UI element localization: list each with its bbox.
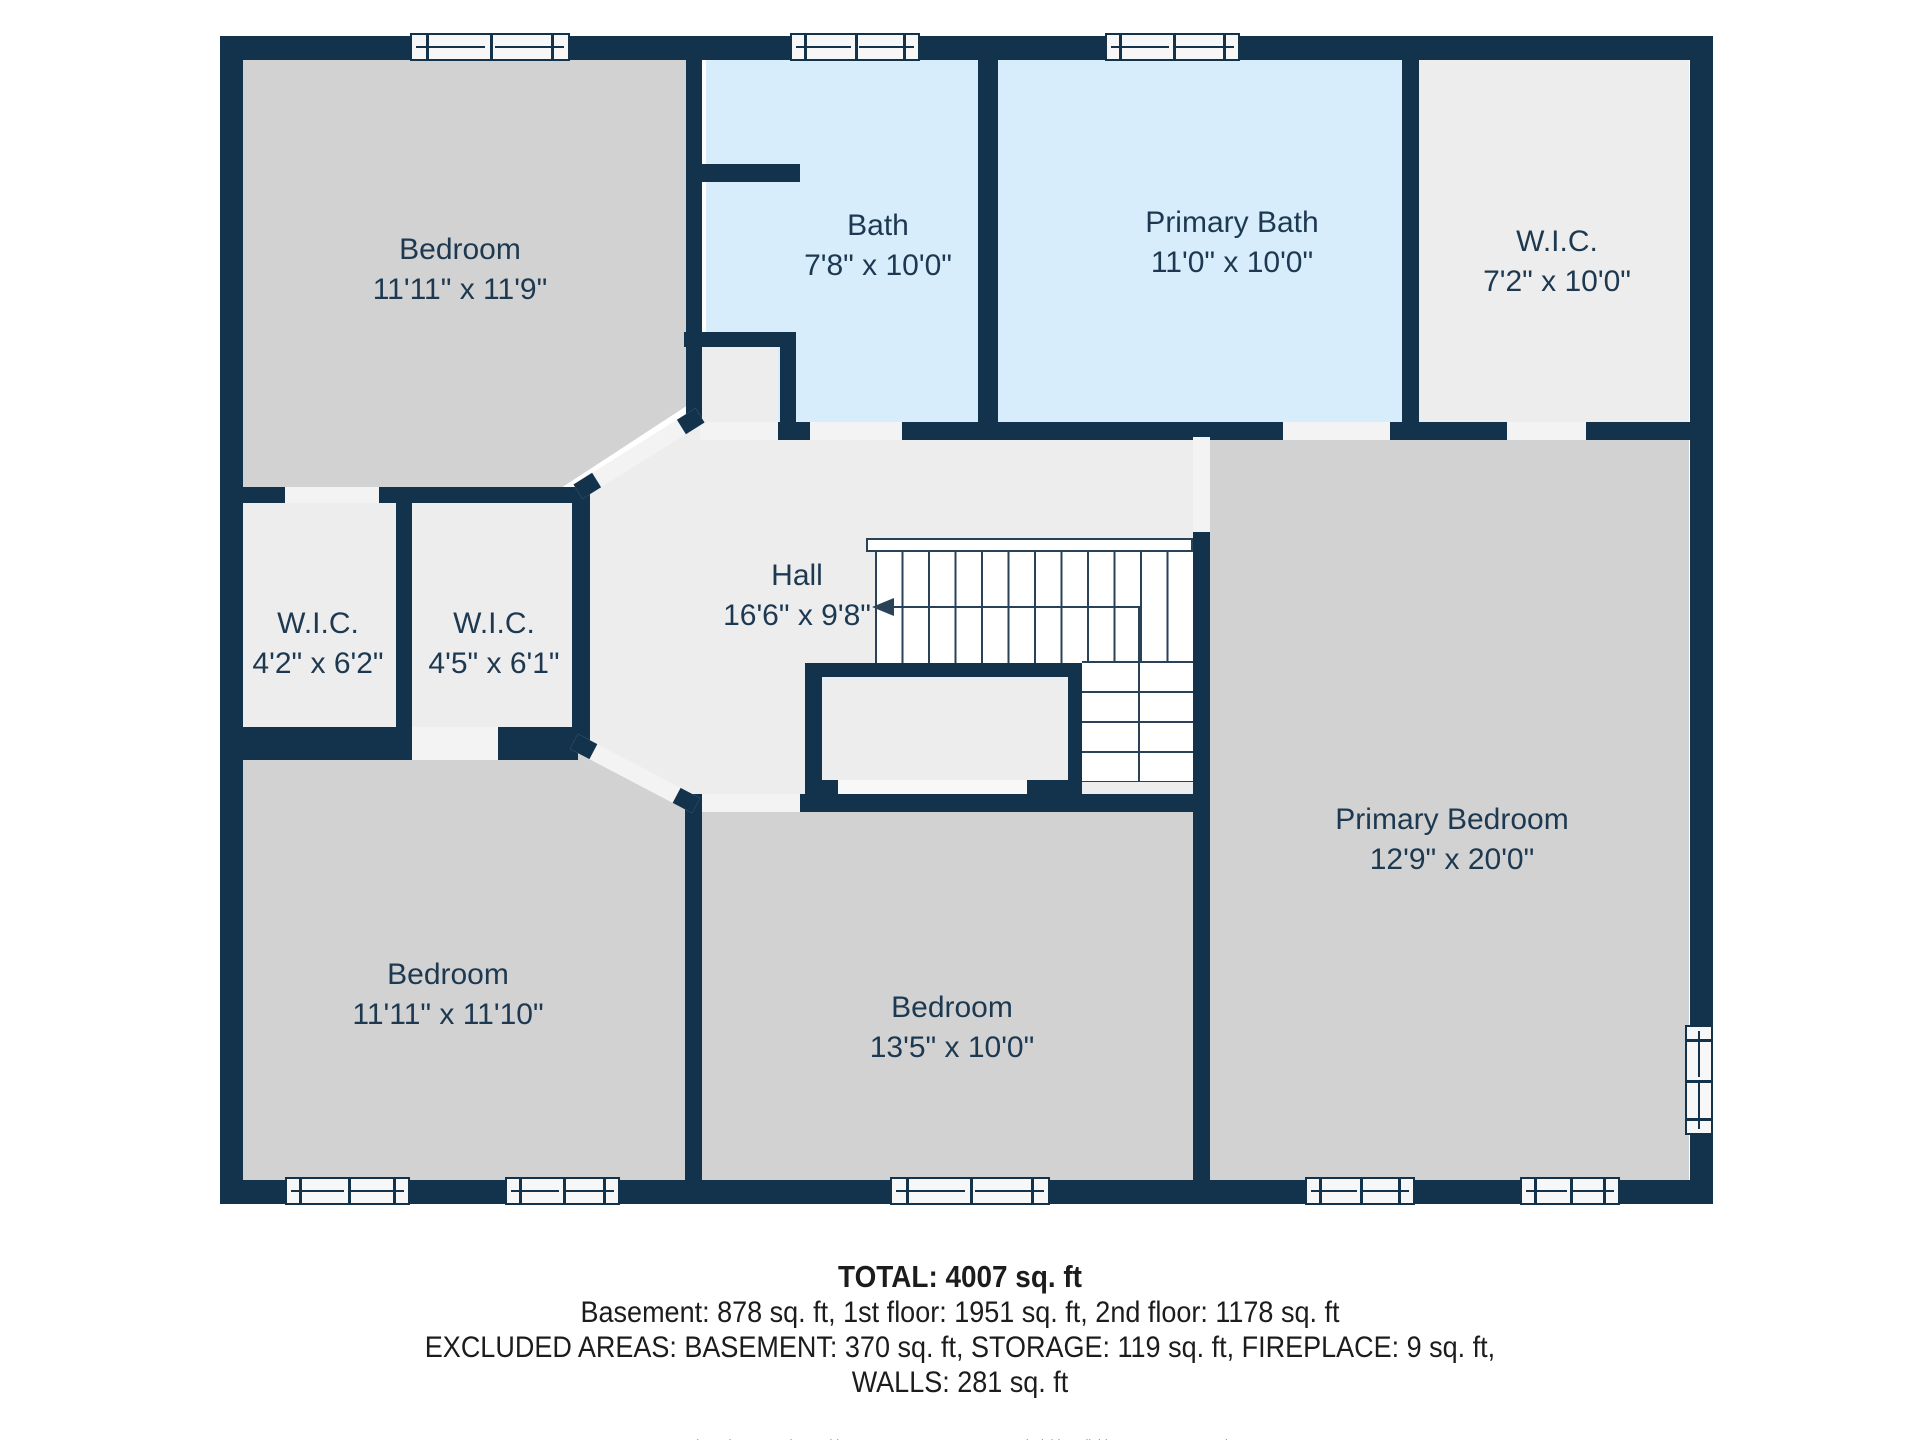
window: [1685, 1025, 1713, 1135]
label-hall: Hall16'6" x 9'8": [723, 556, 871, 636]
wall-hall-top-c: [1390, 422, 1507, 440]
stairs-balustrade: [866, 538, 1193, 552]
walls-area: WALLS: 281 sq. ft: [96, 1369, 1824, 1397]
label-wic-topright: W.I.C.7'2" x 10'0": [1483, 222, 1631, 302]
wall-hall-top-b: [902, 422, 1283, 440]
door-wic-topright: [1507, 422, 1586, 440]
wall-hall-left: [572, 487, 590, 747]
exterior-wall-left: [220, 36, 243, 1204]
window: [1105, 33, 1240, 61]
wall-wic-top-a: [243, 487, 285, 503]
stairs-direction-arrow: [872, 598, 894, 616]
door-bedroom-bottomcenter: [702, 794, 800, 812]
window: [285, 1177, 410, 1205]
wall-hall-top-d: [1586, 422, 1690, 440]
door-bath: [810, 422, 902, 440]
wall-wic-top-b: [379, 487, 577, 503]
label-primary-bedroom: Primary Bedroom12'9" x 20'0": [1335, 800, 1568, 880]
stair-closet-opening: [838, 780, 1027, 794]
wall-bath-stub: [696, 164, 800, 182]
wall-bedrooms-divider: [685, 805, 702, 1180]
window: [1305, 1177, 1415, 1205]
wall-wic-divider: [396, 503, 412, 727]
label-wic-left: W.I.C.4'2" x 6'2": [252, 604, 383, 684]
stairs-arrow-horizontal: [892, 606, 1140, 608]
wall-vestibule-right: [780, 332, 796, 422]
window: [1520, 1177, 1620, 1205]
label-primary-bath: Primary Bath11'0" x 10'0": [1145, 203, 1318, 283]
wall-primarybath-wic: [1402, 58, 1419, 424]
label-bath: Bath7'8" x 10'0": [804, 206, 952, 286]
area-summary: TOTAL: 4007 sq. ft Basement: 878 sq. ft,…: [0, 1262, 1920, 1440]
wall-hall-primary-stub: [1193, 422, 1210, 437]
window: [890, 1177, 1050, 1205]
total-area: TOTAL: 4007 sq. ft: [96, 1262, 1824, 1292]
window: [505, 1177, 620, 1205]
label-bedroom-topleft: Bedroom11'11" x 11'9": [373, 230, 548, 310]
window: [790, 33, 920, 61]
excluded-areas: EXCLUDED AREAS: BASEMENT: 370 sq. ft, ST…: [96, 1334, 1824, 1362]
floor-plan-page: Bedroom11'11" x 11'9" Bath7'8" x 10'0" P…: [0, 0, 1920, 1440]
door-primary-bedroom: [1193, 437, 1210, 532]
door-vestibule: [700, 422, 778, 440]
label-wic-left2: W.I.C.4'5" x 6'1": [428, 604, 559, 684]
stair-closet-interior: [822, 677, 1068, 780]
door-wic-left2: [412, 727, 498, 760]
wall-wic-bottom: [220, 727, 578, 760]
door-primarybath-bedroom: [1283, 422, 1390, 440]
wall-bedroom-bath: [686, 58, 702, 424]
window: [410, 33, 570, 61]
wall-hall-bottom: [800, 794, 1193, 812]
floor-areas: Basement: 878 sq. ft, 1st floor: 1951 sq…: [96, 1299, 1824, 1327]
label-bedroom-bottomcenter: Bedroom13'5" x 10'0": [870, 988, 1035, 1068]
wall-bath-primarybath: [978, 58, 998, 424]
stairs-arrow-vertical: [1138, 607, 1140, 782]
wall-hall-primary: [1193, 532, 1210, 1180]
label-bedroom-bottomleft: Bedroom11'11" x 11'10": [352, 955, 543, 1035]
door-wic-left: [285, 487, 379, 503]
wall-hall-top-a: [778, 422, 810, 440]
hall-vestibule: [698, 346, 778, 422]
